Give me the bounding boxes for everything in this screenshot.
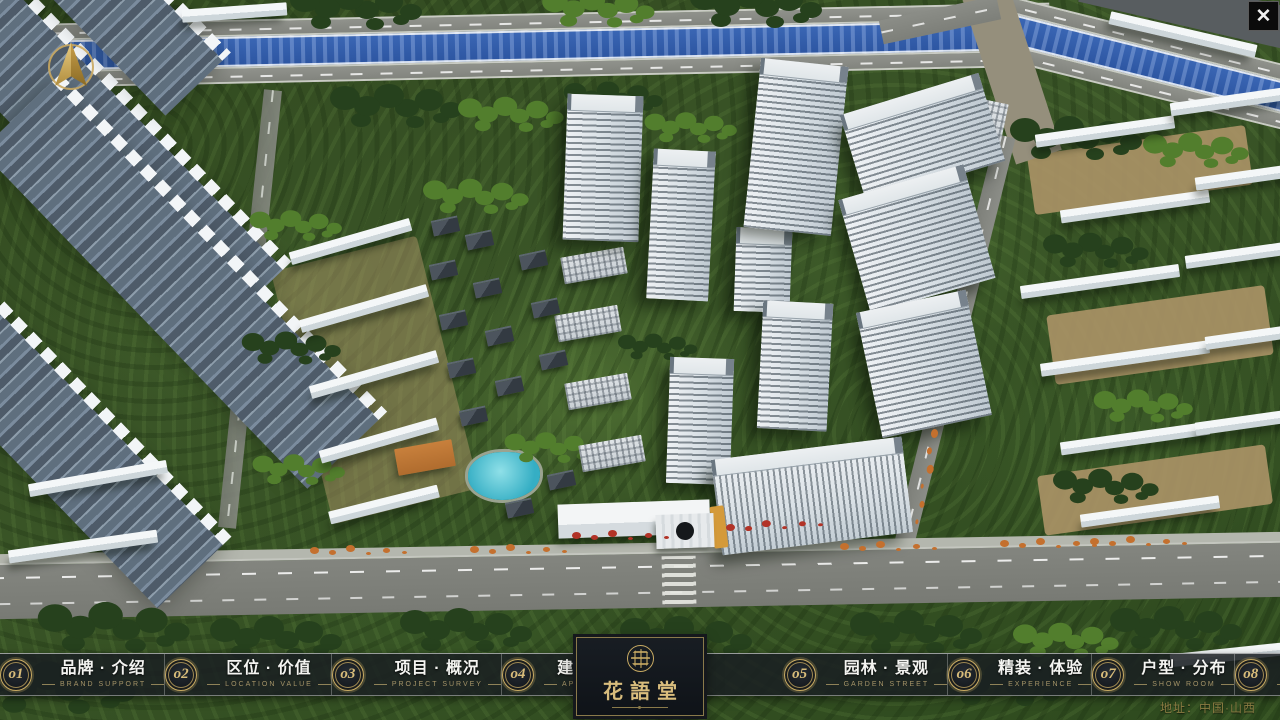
nav-badge-6: o6 (948, 659, 980, 691)
tree-cluster (1094, 391, 1117, 409)
nav-item-brand[interactable]: o1 品牌 · 介绍 BRAND SUPPORT (0, 654, 164, 695)
nav-item-garden[interactable]: o5 园林 · 景观 GARDEN STREET (784, 654, 948, 695)
tree-cluster (242, 333, 265, 351)
masterplan-3d-scene[interactable]: ✕ o1 品牌 · 介绍 BRAND SUPPORT o2 区位 · 价值 LO… (0, 0, 1280, 720)
entrance-gate (655, 513, 714, 549)
nav-label-zh: 品牌 · 介绍 (60, 660, 145, 678)
nav-label-en: BRAND SUPPORT (42, 681, 164, 689)
courtyard-house (459, 405, 489, 426)
crosswalk (662, 556, 697, 605)
tree-cluster (330, 86, 360, 110)
seal-emblem-icon (627, 645, 654, 672)
nav-item-floorplan[interactable]: o7 户型 · 分布 SHOW ROOM (1091, 654, 1234, 695)
tree-cluster (290, 0, 320, 12)
nav-item-interior[interactable]: o6 精装 · 体验 EXPERIENCE (947, 654, 1091, 695)
orange-shrubs (1000, 540, 1009, 547)
nav-label-zh: 户型 · 分布 (1141, 660, 1226, 678)
nav-item-location[interactable]: o2 区位 · 价值 LOCATION VALUE (164, 654, 331, 695)
nav-badge-2: o2 (165, 659, 197, 691)
highrise-tower (562, 94, 643, 243)
tree-cluster (645, 114, 666, 131)
orange-shrubs (310, 547, 319, 554)
midrise-building (560, 247, 628, 285)
close-button[interactable]: ✕ (1248, 1, 1279, 31)
courtyard-house (429, 259, 459, 280)
orange-shrubs (470, 546, 479, 553)
close-icon: ✕ (1256, 5, 1272, 28)
swimming-pool (468, 452, 540, 500)
courtyard-house (465, 229, 495, 250)
tree-cluster (542, 0, 568, 12)
courtyard-house (547, 469, 577, 490)
nav-badge-4: o4 (502, 659, 534, 691)
highrise-tower (711, 437, 913, 556)
tree-cluster (423, 180, 447, 199)
nav-label-en: LOCATION VALUE (207, 681, 331, 689)
courtyard-house (439, 309, 469, 330)
tree-cluster (253, 456, 274, 473)
courtyard-house (495, 375, 525, 396)
tree-cluster (850, 612, 880, 636)
nav-label-zh: 精装 · 体验 (998, 660, 1083, 678)
nav-label-zh: 区位 · 价值 (226, 660, 311, 678)
nav-item-room-view[interactable]: o8 一房 · 一景 COMMUNITY (1234, 654, 1280, 695)
tree-cluster (1110, 608, 1140, 632)
project-logo-title: 花語堂 (596, 675, 684, 704)
project-logo-panel[interactable]: 花語堂 (576, 637, 704, 716)
nav-label-en: PROJECT SURVEY (374, 681, 501, 689)
courtyard-house (473, 277, 503, 298)
tree-cluster (250, 212, 271, 229)
courtyard-house (539, 349, 569, 370)
courtyard-house (431, 215, 461, 236)
courtyard-house (447, 357, 477, 378)
nav-label-zh: 项目 · 概况 (395, 660, 480, 678)
nav-label-en: SHOW ROOM (1134, 681, 1234, 689)
compass-north-indicator (44, 40, 98, 94)
courtyard-house (485, 325, 515, 346)
courtyard-house (505, 497, 535, 518)
midrise-building (578, 435, 646, 473)
nav-badge-3: o3 (332, 659, 364, 691)
logo-subtext-rule (612, 707, 668, 708)
tree-cluster (210, 618, 240, 642)
orange-shrubs (840, 543, 849, 550)
highrise-tower (757, 300, 834, 431)
orange-shrubs (1090, 538, 1099, 545)
tree-cluster (400, 610, 430, 634)
nav-badge-8: o8 (1235, 659, 1267, 691)
nav-badge-7: o7 (1092, 659, 1124, 691)
nav-item-project[interactable]: o3 项目 · 概况 PROJECT SURVEY (331, 654, 501, 695)
tree-cluster (458, 98, 482, 117)
courtyard-house (519, 249, 549, 270)
nav-label-zh: 园林 · 景观 (844, 660, 929, 678)
nav-badge-1: o1 (0, 659, 32, 691)
project-address: 地址：中国·山西 (1160, 699, 1256, 716)
red-flags (572, 532, 581, 539)
nav-badge-5: o5 (784, 659, 816, 691)
highrise-tower (646, 148, 716, 301)
midrise-building (564, 373, 632, 411)
midrise-building (554, 305, 622, 343)
slab-building (1185, 240, 1280, 269)
tree-cluster (1043, 234, 1067, 253)
tree-cluster (1013, 624, 1037, 643)
tree-cluster (1053, 470, 1077, 489)
tree-cluster (505, 434, 526, 451)
tree-cluster (1143, 134, 1167, 153)
tree-cluster (690, 0, 720, 10)
nav-label-en: GARDEN STREET (826, 681, 948, 689)
slab-building (1060, 422, 1210, 456)
highrise-tower (743, 58, 848, 236)
tree-cluster (618, 335, 636, 349)
ground-patch (1037, 444, 1273, 535)
nav-label-en: EXPERIENCE (990, 681, 1091, 689)
slab-building (1020, 264, 1180, 299)
slab-building (1195, 407, 1280, 435)
tree-cluster (38, 604, 73, 632)
